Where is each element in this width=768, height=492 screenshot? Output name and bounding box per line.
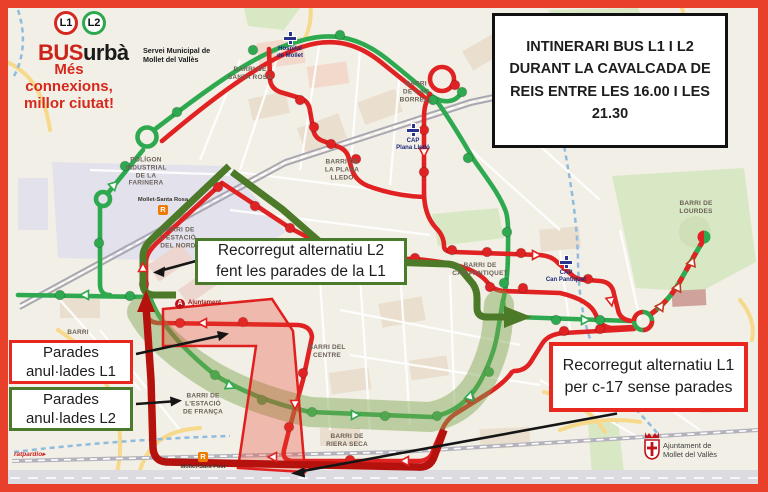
bus-map-poster: BARRI DE SANTA ROSABARRI DE CAN BORRELLB… [0, 0, 768, 492]
callout-layer: INTINERARI BUS L1 I L2 DURANT LA CAVALCA… [0, 0, 768, 492]
callout-cancelled-stops-l2: Parades anul·lades L2 [9, 387, 133, 431]
callout-alt-route-l2: Recorregut alternatiu L2 fent les parade… [195, 238, 407, 285]
itinerary-info-box: INTINERARI BUS L1 I L2 DURANT LA CAVALCA… [492, 13, 728, 148]
callout-alt-route-l1: Recorregut alternatiu L1 per c-17 sense … [549, 342, 748, 412]
callout-cancelled-stops-l1: Parades anul·lades L1 [9, 340, 133, 384]
